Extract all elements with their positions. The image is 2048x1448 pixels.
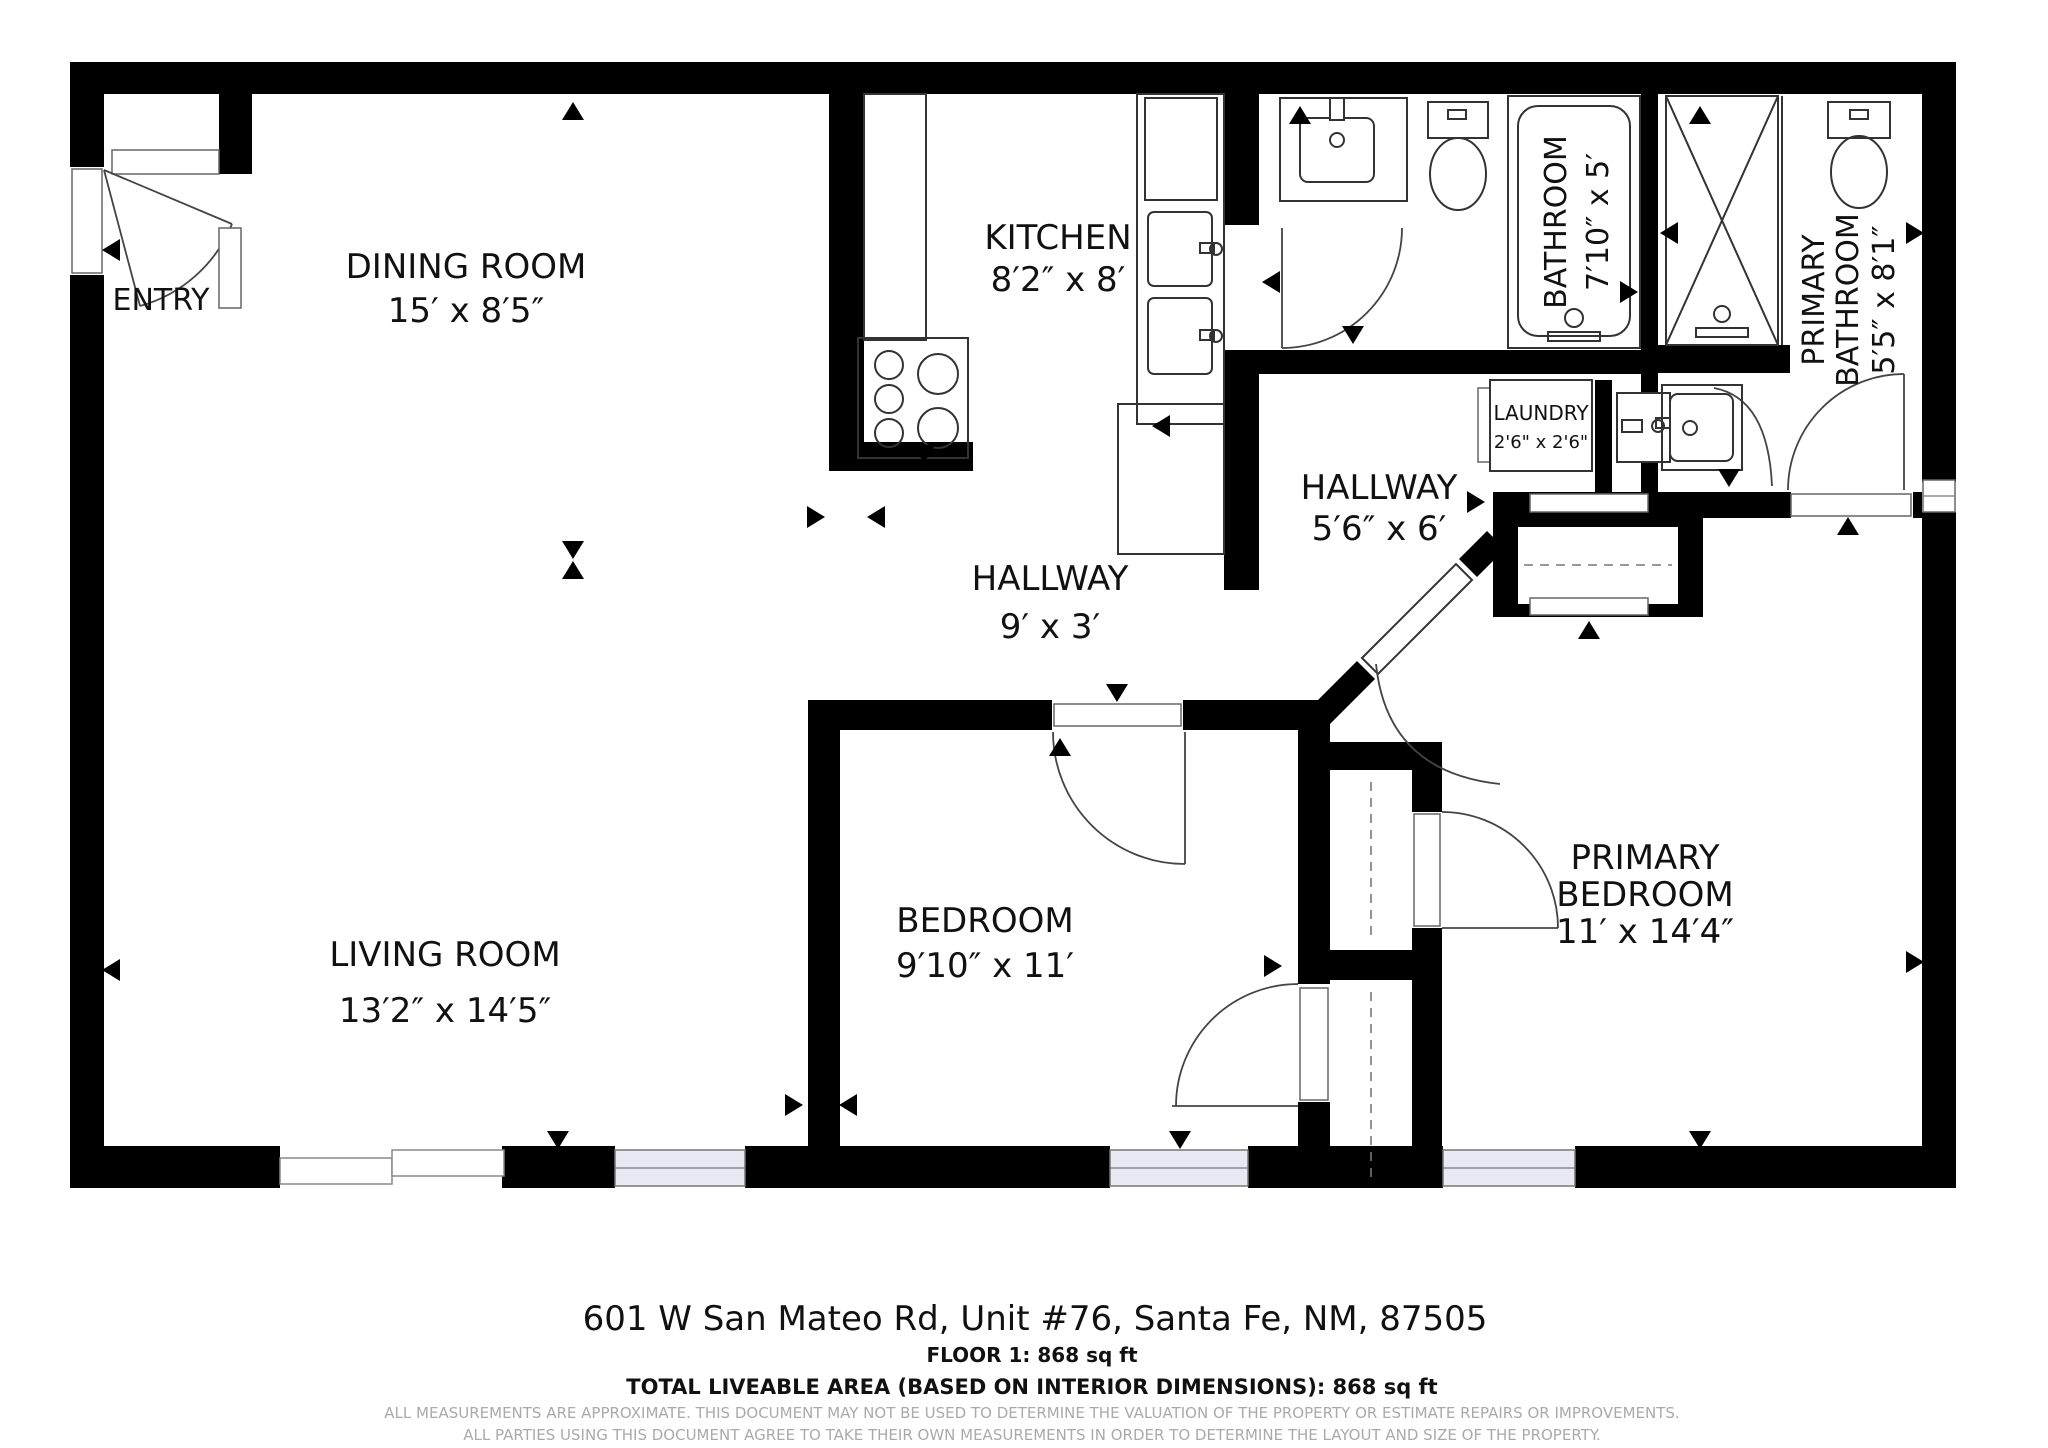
room-label-bedroom: BEDROOM <box>896 901 1073 941</box>
fridge-icon <box>1118 404 1224 554</box>
address-line: 601 W San Mateo Rd, Unit #76, Santa Fe, … <box>583 1299 1488 1339</box>
room-dims-kitchen: 8′2″ x 8′ <box>991 260 1126 300</box>
kitchen-sink-icon <box>1148 212 1222 374</box>
disclaimer-line-2: ALL PARTIES USING THIS DOCUMENT AGREE TO… <box>463 1426 1600 1444</box>
entry-closet-door <box>112 150 219 174</box>
room-label-hallway-rear: HALLWAY <box>1301 468 1458 508</box>
bathroom-door-arc <box>1282 228 1402 348</box>
room-label-hallway-main: HALLWAY <box>972 559 1129 599</box>
entry-door-leaf <box>104 170 232 224</box>
room-dims-primary-bedroom: 11′ x 14′4″ <box>1556 912 1734 952</box>
room-dims-hallway-main: 9′ x 3′ <box>1000 607 1100 647</box>
room-dims-dining: 15′ x 8′5″ <box>388 291 544 331</box>
floor-plan-page: ENTRY DINING ROOM 15′ x 8′5″ KITCHEN 8′2… <box>0 0 2048 1448</box>
porch-rail <box>392 1150 504 1176</box>
entry-door-jamb <box>72 169 102 273</box>
bedroom-closet-sill <box>1300 988 1328 1100</box>
room-dims-laundry: 2'6" x 2'6" <box>1494 432 1588 453</box>
kitchen-fixtures <box>858 94 1224 554</box>
floor-area-line: FLOOR 1: 868 sq ft <box>926 1343 1138 1367</box>
disclaimer-line-1: ALL MEASUREMENTS ARE APPROXIMATE. THIS D… <box>384 1404 1679 1422</box>
primary-bath-door-arc <box>1788 374 1904 490</box>
primary-closet-door-arc <box>1442 812 1558 928</box>
room-label-primary-bedroom-2: BEDROOM <box>1556 875 1733 915</box>
toilet-icon <box>1828 102 1890 208</box>
room-label-living: LIVING ROOM <box>329 935 560 975</box>
footer: 601 W San Mateo Rd, Unit #76, Santa Fe, … <box>384 1299 1679 1444</box>
bedroom-closet-door-arc <box>1176 984 1298 1106</box>
room-label-primary-bathroom-1: PRIMARY <box>1797 234 1832 366</box>
closet-opening-sill <box>1530 598 1648 615</box>
hallway-opening-sill <box>1530 494 1648 512</box>
room-label-laundry: LAUNDRY <box>1493 401 1589 425</box>
room-dims-bedroom: 9′10″ x 11′ <box>896 946 1074 986</box>
room-dims-bathroom: 7′10″ x 5′ <box>1581 153 1616 291</box>
kitchen-counter <box>864 94 926 340</box>
primary-closet-sill <box>1414 814 1440 926</box>
laundry-box <box>1490 380 1592 471</box>
room-dims-living: 13′2″ x 14′5″ <box>339 991 551 1031</box>
porch-rail <box>280 1158 392 1184</box>
bedroom-door-arc <box>1053 732 1185 864</box>
room-label-primary-bathroom-2: BATHROOM <box>1831 213 1866 387</box>
laundry-door-leaf <box>1478 388 1490 462</box>
room-label-dining: DINING ROOM <box>346 247 587 287</box>
bathtub-icon <box>1508 96 1640 348</box>
room-label-entry: ENTRY <box>113 283 211 318</box>
bedroom-door-sill <box>1054 704 1181 726</box>
dishwasher-icon <box>1145 98 1217 200</box>
room-dims-primary-bathroom: 5′5″ x 8′1″ <box>1867 225 1902 374</box>
toilet-icon <box>1428 102 1488 210</box>
stove-icon <box>858 338 968 458</box>
room-label-bathroom: BATHROOM <box>1539 135 1574 309</box>
room-label-kitchen: KITCHEN <box>984 218 1131 258</box>
room-dims-hallway-rear: 5′6″ x 6′ <box>1312 509 1447 549</box>
floor-plan: ENTRY DINING ROOM 15′ x 8′5″ KITCHEN 8′2… <box>0 0 2048 1448</box>
shower-icon <box>1666 96 1782 345</box>
laundry-closet <box>1490 380 1592 471</box>
entry-door-leaf-open <box>219 228 241 308</box>
room-label-primary-bedroom-1: PRIMARY <box>1571 838 1720 878</box>
total-area-line: TOTAL LIVEABLE AREA (BASED ON INTERIOR D… <box>626 1375 1437 1399</box>
primary-bath-door-sill <box>1791 494 1911 516</box>
angled-door-leaf <box>1362 564 1472 674</box>
